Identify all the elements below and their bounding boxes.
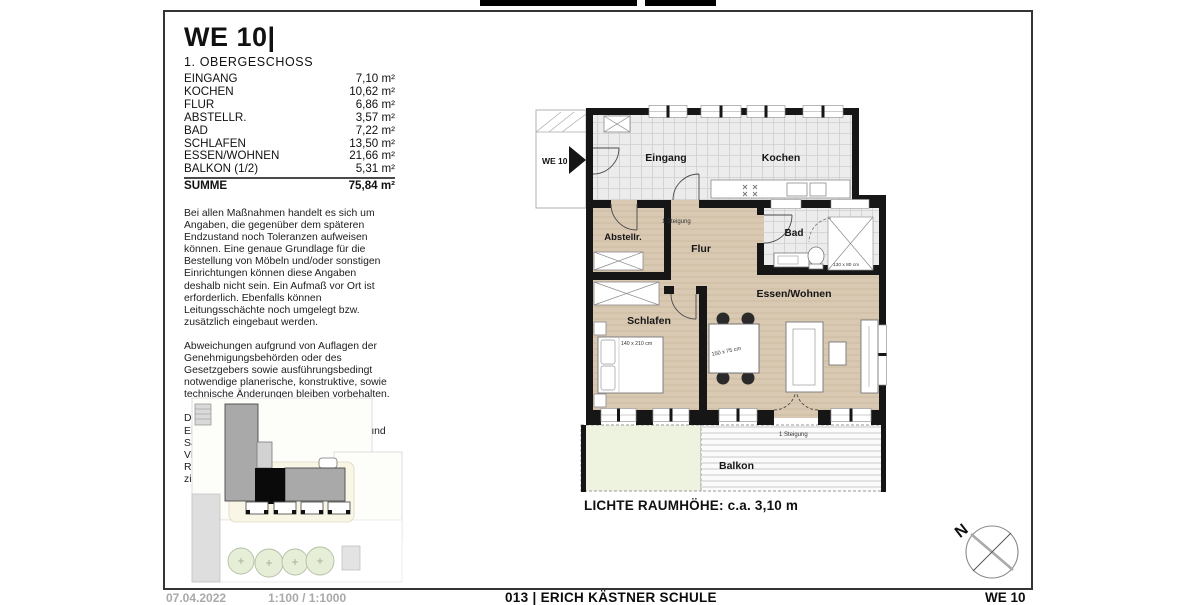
balcony-green-area <box>581 425 701 491</box>
disclaimer-paragraph: Bei allen Maßnahmen handelt es sich um A… <box>184 208 393 329</box>
site-shed <box>342 546 360 570</box>
room-label-bad: Bad <box>785 228 804 239</box>
room-label-balkon: Balkon <box>719 460 754 472</box>
kitchen-counter <box>711 180 850 198</box>
site-road <box>192 494 220 582</box>
page-title: WE 10| <box>184 22 313 53</box>
plan-unit-label: WE 10 <box>542 156 568 166</box>
window-icon <box>878 325 887 385</box>
title-block: WE 10| 1. OBERGESCHOSS <box>184 22 313 69</box>
room-label-kochen: Kochen <box>762 152 801 164</box>
nightstand-icon <box>594 322 606 335</box>
steigung-label: 1 Steigung <box>662 219 691 225</box>
compass-north-label: N <box>952 521 972 542</box>
cutoff-header-bar <box>645 0 716 6</box>
bed-size-label: 140 x 210 cm <box>621 341 652 347</box>
nightstand-icon <box>594 394 606 407</box>
room-height-note: LICHTE RAUMHÖHE: c.a. 3,10 m <box>584 498 798 513</box>
sink-icon <box>787 183 807 196</box>
room-label-eingang: Eingang <box>645 152 686 164</box>
table-row: ABSTELLR.3,57 m² <box>184 112 395 125</box>
table-row: FLUR6,86 m² <box>184 99 395 112</box>
toilet-icon <box>808 247 824 265</box>
table-row: BAD7,22 m² <box>184 125 395 138</box>
site-highlighted-unit <box>255 468 285 504</box>
shaft-box <box>604 116 630 132</box>
table-row-total: SUMME75,84 m² <box>184 179 395 193</box>
page-subtitle: 1. OBERGESCHOSS <box>184 55 313 69</box>
sink-icon <box>774 253 809 267</box>
site-building-annex <box>257 442 272 468</box>
site-building <box>285 468 345 501</box>
sideboard-icon <box>861 320 878 393</box>
room-label-essen-wohnen: Essen/Wohnen <box>756 288 831 300</box>
site-plan <box>184 394 409 586</box>
room-label-abstellraum: Abstellr. <box>604 232 642 243</box>
sink-icon <box>810 183 826 196</box>
table-row: BALKON (1/2)5,31 m² <box>184 163 395 179</box>
room-label-schlafen: Schlafen <box>627 315 671 327</box>
compass-icon: N <box>945 514 1025 584</box>
site-building <box>225 404 258 501</box>
site-canopy <box>319 458 337 468</box>
footer-date-scale: 07.04.20221:100 / 1:1000 <box>166 591 388 605</box>
footer-project-title: 013 | ERICH KÄSTNER SCHULE <box>505 590 717 605</box>
area-table: EINGANG7,10 m² KOCHEN10,62 m² FLUR6,86 m… <box>184 73 395 193</box>
disclaimer-paragraph: Abweichungen aufgrund von Auflagen der G… <box>184 341 393 401</box>
floor-plan: WE 10 <box>531 100 891 500</box>
table-row: EINGANG7,10 m² <box>184 73 395 86</box>
table-row: KOCHEN10,62 m² <box>184 86 395 99</box>
steigung-label: 1 Steigung <box>779 432 808 438</box>
cutoff-header-bar <box>480 0 637 6</box>
plan-sheet: WE 10| 1. OBERGESCHOSS EINGANG7,10 m² KO… <box>163 10 1033 590</box>
footer-unit-label: WE 10 <box>985 590 1026 605</box>
site-stair-hatch <box>195 404 211 425</box>
room-label-flur: Flur <box>691 243 711 255</box>
bed-icon: 140 x 210 cm <box>598 337 663 393</box>
shower-size-label: 130 x 80 cm <box>833 262 859 268</box>
